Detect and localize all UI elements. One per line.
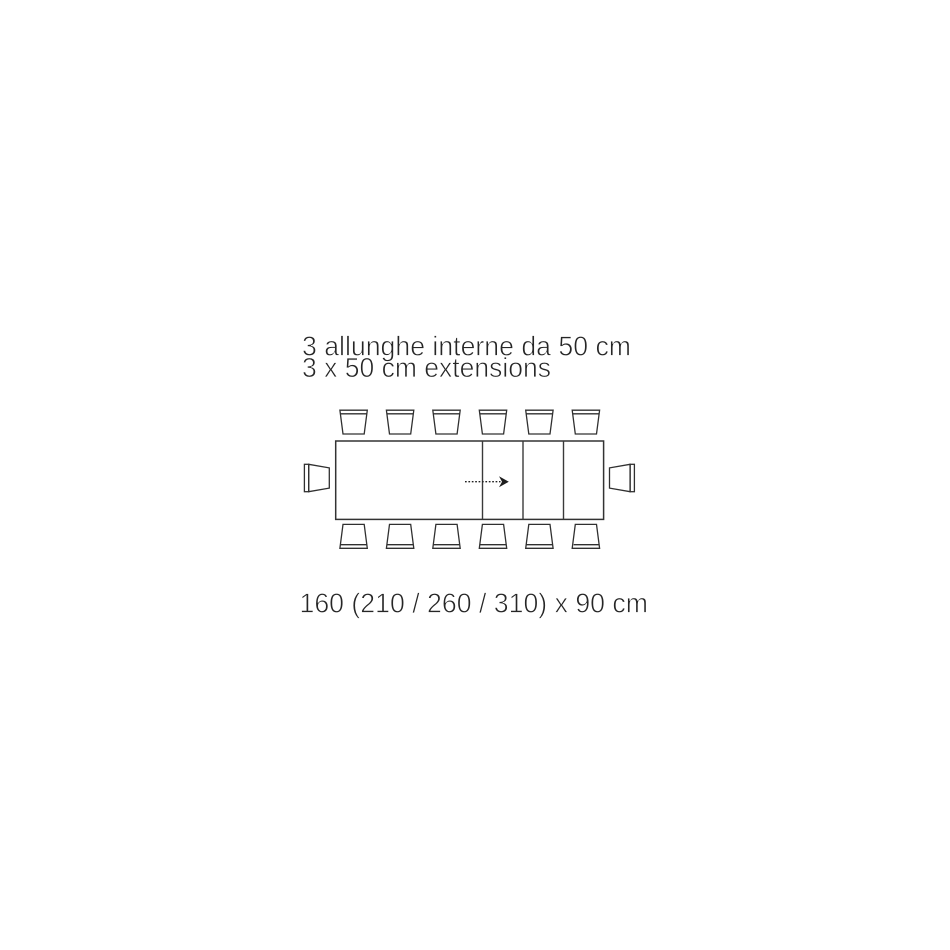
svg-text:3 x 50 cm extensions: 3 x 50 cm extensions xyxy=(302,352,551,383)
svg-text:160 (210 / 260 / 310) x 90 cm: 160 (210 / 260 / 310) x 90 cm xyxy=(300,587,649,618)
